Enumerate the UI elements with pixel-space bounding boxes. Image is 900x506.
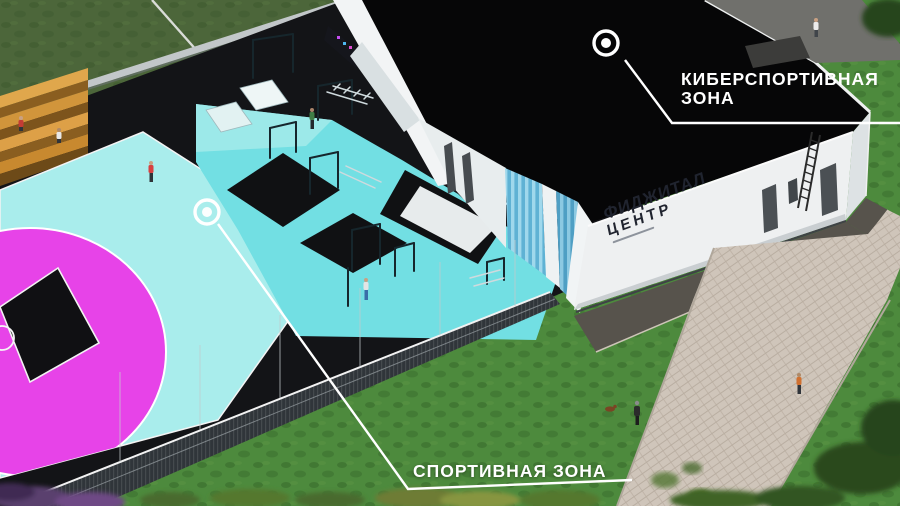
- cybersport-zone-label-line1: КИБЕРСПОРТИВНАЯ: [681, 70, 879, 89]
- window: [788, 178, 798, 204]
- callout-cybersport-zone: КИБЕРСПОРТИВНАЯ ЗОНА: [681, 70, 879, 108]
- sport-zone-label: СПОРТИВНАЯ ЗОНА: [413, 461, 607, 481]
- callout-sport-zone: СПОРТИВНАЯ ЗОНА: [413, 462, 607, 481]
- render-canvas: КИБЕРСПОРТИВНАЯ ЗОНА СПОРТИВНАЯ ЗОНА ФИД…: [0, 0, 900, 506]
- door: [762, 184, 778, 233]
- person-bleachers-2: [57, 128, 62, 143]
- cybersport-zone-label-line2: ЗОНА: [681, 89, 879, 108]
- door: [820, 163, 838, 216]
- person-bleachers-1: [19, 116, 24, 131]
